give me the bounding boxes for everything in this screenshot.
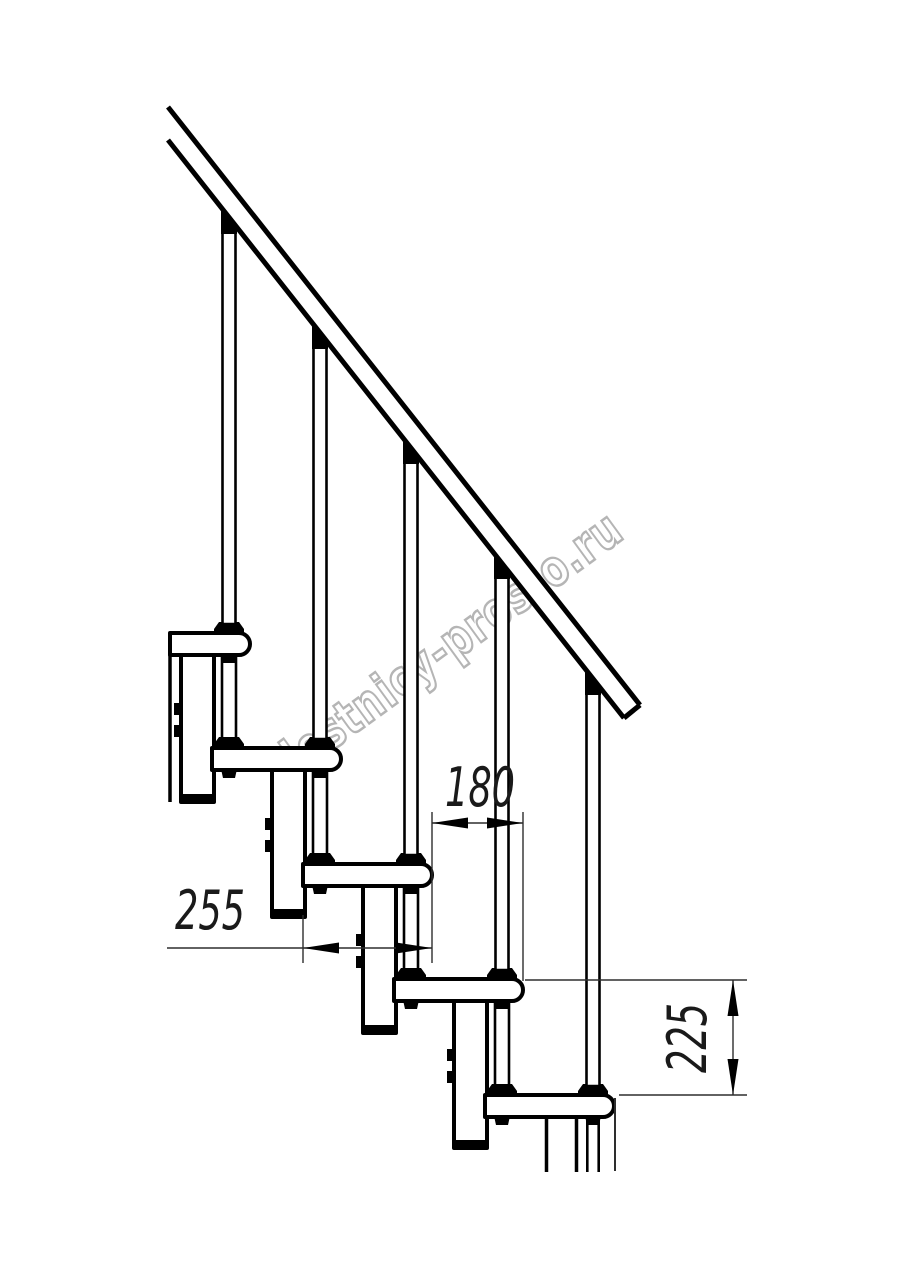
baluster [223,230,236,624]
tread [485,1095,614,1117]
rod-foot [214,737,244,748]
bolt-tab [265,840,273,852]
module-brackets [212,769,485,1147]
support-rod [404,885,418,972]
arrow-up [728,980,739,1016]
nut [403,1000,419,1009]
support-rod [313,769,327,857]
support-rod [222,654,236,741]
module-column [272,768,305,917]
tread [170,633,250,655]
support-rod [495,1000,509,1088]
module-flange [361,1025,397,1033]
nut [312,769,328,778]
module-column-cut [546,1115,577,1172]
nut [312,885,328,894]
module-flanges [179,794,488,1148]
module-column [454,999,487,1148]
tread [394,979,523,1001]
bolt-tab [174,703,182,715]
rod-foot [396,968,426,979]
module-flange [452,1140,488,1148]
staircase-drawing: lestnicy-prosto.ru [0,0,914,1280]
nut [403,885,419,894]
arrow-left [432,818,468,829]
module-column [181,653,214,802]
nut [585,1116,601,1125]
dimension-value-255: 255 [175,879,245,942]
dimension-value-225: 225 [656,1003,719,1073]
nut [221,769,237,778]
rod-foot [487,1084,517,1095]
nut [494,1116,510,1125]
nut [494,1000,510,1009]
bolt-tab [356,956,364,968]
nut [221,654,237,663]
tread [303,864,432,886]
dimension-value-180: 180 [445,756,515,819]
module-flange [270,909,306,917]
bolt-tab [265,818,273,830]
bolt-tab [174,725,182,737]
baluster [314,345,327,739]
staircase [168,107,640,1172]
bolt-tab [356,934,364,946]
baluster [405,461,418,855]
module-column [363,884,396,1033]
baluster [587,692,600,1086]
bolt-tab [447,1071,455,1083]
rod-foot [305,853,335,864]
tread [212,748,341,770]
module-flange [179,794,215,802]
arrow-down [728,1059,739,1095]
bolt-tab [447,1049,455,1061]
arrow-left [303,943,339,954]
technical-drawing-page: lestnicy-prosto.ru [0,0,914,1280]
